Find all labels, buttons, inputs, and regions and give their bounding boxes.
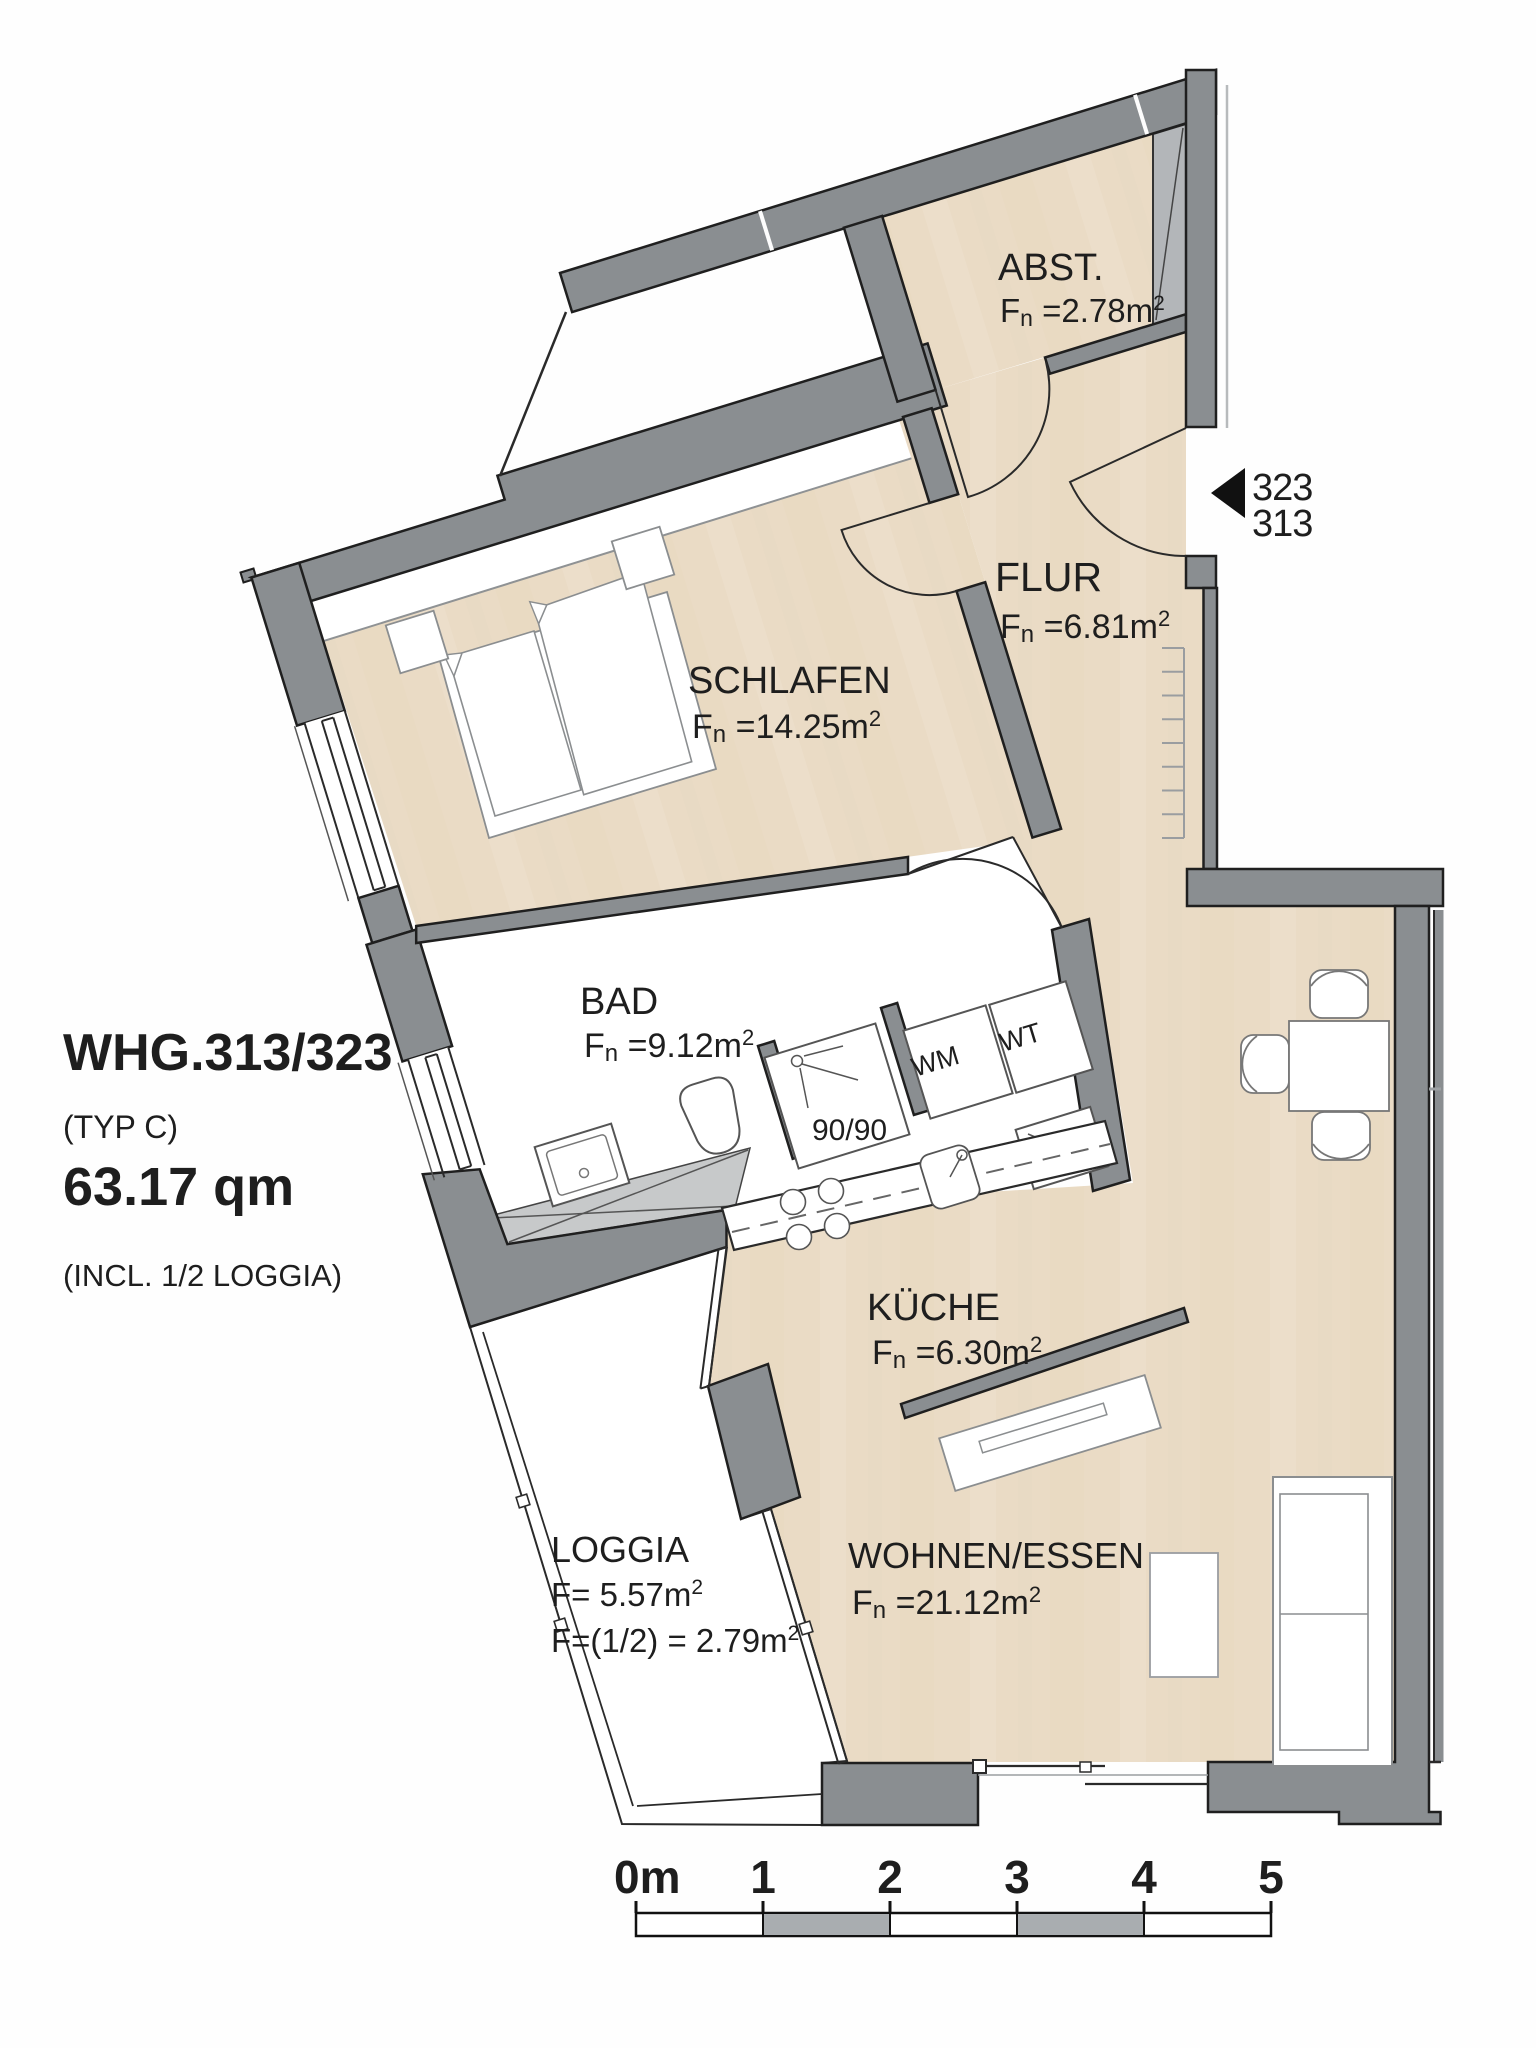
- svg-text:313: 313: [1252, 503, 1312, 545]
- svg-text:(INCL. 1/2 LOGGIA): (INCL. 1/2 LOGGIA): [63, 1258, 342, 1293]
- svg-text:1: 1: [750, 1851, 776, 1903]
- svg-text:ABST.: ABST.: [998, 247, 1104, 289]
- svg-text:SCHLAFEN: SCHLAFEN: [688, 660, 891, 702]
- svg-text:3: 3: [1004, 1851, 1030, 1903]
- svg-text:2: 2: [877, 1851, 903, 1903]
- svg-text:WOHNEN/ESSEN: WOHNEN/ESSEN: [848, 1535, 1144, 1576]
- svg-text:KÜCHE: KÜCHE: [867, 1287, 1000, 1329]
- svg-text:63.17 qm: 63.17 qm: [63, 1157, 294, 1217]
- svg-text:LOGGIA: LOGGIA: [551, 1529, 689, 1570]
- svg-text:F=(1/2) = 2.79m2: F=(1/2) = 2.79m2: [551, 1622, 799, 1659]
- svg-text:F= 5.57m2: F= 5.57m2: [551, 1576, 703, 1613]
- svg-text:(TYP C): (TYP C): [63, 1109, 178, 1145]
- svg-text:WHG.313/323: WHG.313/323: [63, 1024, 393, 1082]
- svg-text:4: 4: [1131, 1851, 1157, 1903]
- svg-text:BAD: BAD: [580, 981, 658, 1023]
- svg-text:FLUR: FLUR: [995, 554, 1102, 600]
- svg-text:0m: 0m: [614, 1851, 680, 1903]
- svg-text:90/90: 90/90: [812, 1114, 887, 1147]
- svg-text:5: 5: [1258, 1851, 1284, 1903]
